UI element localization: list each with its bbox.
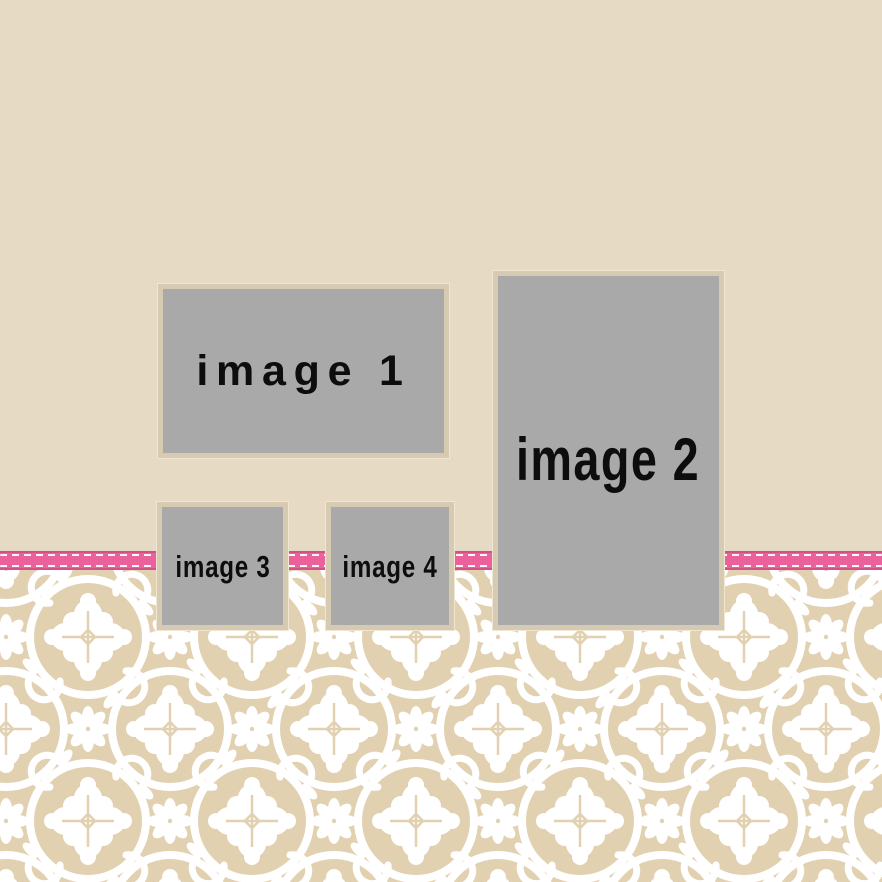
image-placeholder-3[interactable]: image 3 xyxy=(157,502,288,630)
placeholder-label-1: image 1 xyxy=(196,350,410,393)
image-placeholder-4[interactable]: image 4 xyxy=(326,502,454,630)
image-placeholder-2[interactable]: image 2 xyxy=(493,271,724,630)
placeholder-label-2: image 2 xyxy=(516,430,700,490)
scrapbook-page: image 1 image 2 image 3 image 4 xyxy=(0,0,882,882)
placeholder-label-3: image 3 xyxy=(175,551,270,582)
placeholder-label-4: image 4 xyxy=(342,551,437,582)
image-placeholder-1[interactable]: image 1 xyxy=(158,284,449,458)
